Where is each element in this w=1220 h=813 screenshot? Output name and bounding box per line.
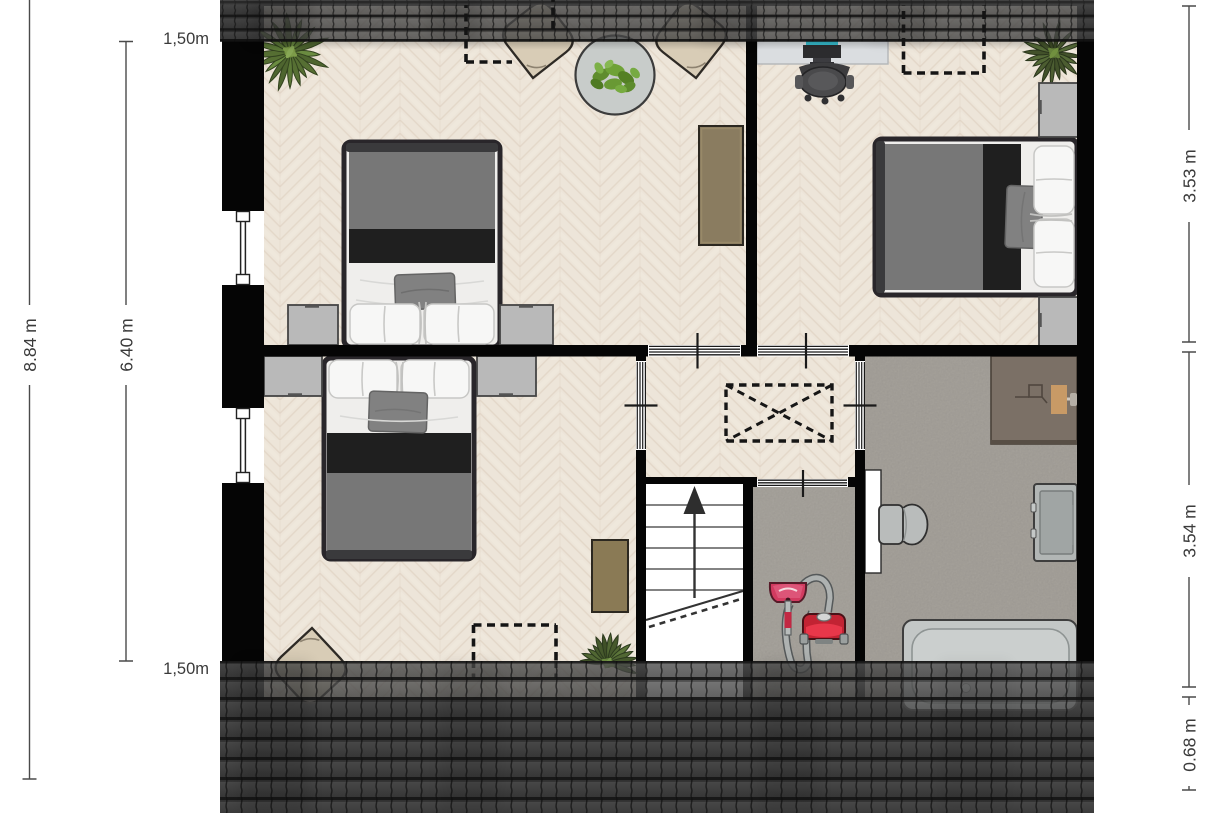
svg-text:3.54 m: 3.54 m (1180, 504, 1200, 558)
svg-text:1,50m: 1,50m (163, 30, 209, 48)
svg-text:8.84 m: 8.84 m (20, 318, 40, 372)
svg-text:3.53 m: 3.53 m (1180, 149, 1200, 203)
svg-text:1,50m: 1,50m (163, 660, 209, 678)
svg-text:6.40 m: 6.40 m (117, 318, 137, 372)
svg-text:0.68 m: 0.68 m (1180, 718, 1200, 772)
